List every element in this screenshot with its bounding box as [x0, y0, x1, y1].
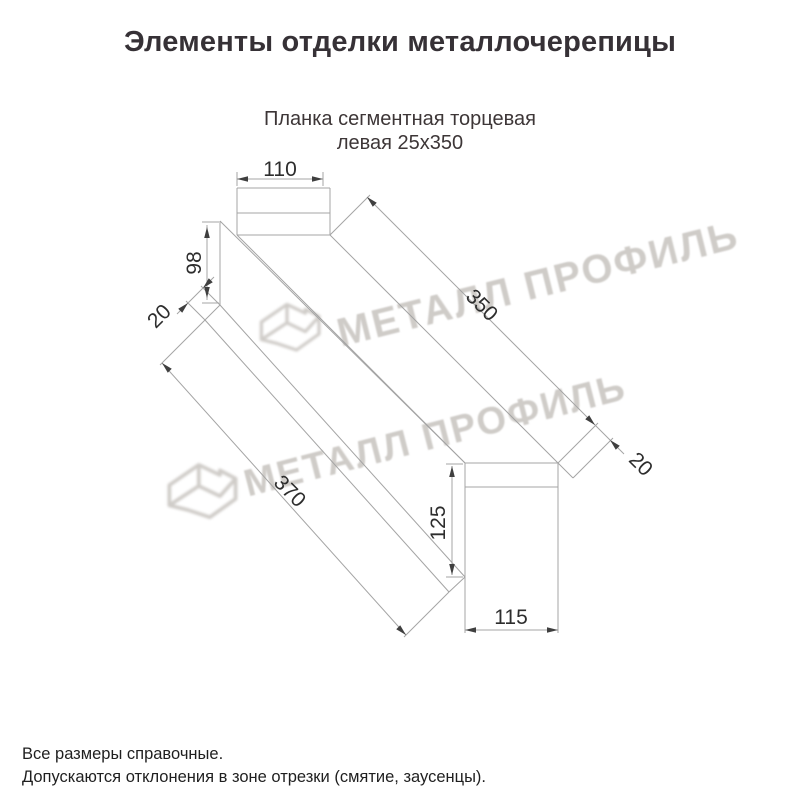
drawing-line — [595, 425, 624, 454]
dimension-arrow — [396, 625, 406, 635]
dimension-arrow — [204, 287, 210, 298]
drawing-line — [558, 423, 598, 463]
drawing-line — [330, 195, 370, 235]
dimension-arrow — [162, 363, 172, 373]
dimension-arrow — [237, 176, 248, 182]
dimension-label: 350 — [461, 285, 502, 326]
dimension-arrow — [449, 466, 455, 477]
dimension-label: 110 — [263, 158, 296, 181]
dimension-label: 125 — [427, 505, 450, 540]
drawing-line — [330, 235, 558, 463]
drawing-line — [404, 592, 449, 637]
drawing-line — [558, 463, 573, 478]
footnote-1: Все размеры справочные. — [22, 743, 486, 766]
drawing-line — [573, 438, 613, 478]
dimension-arrow — [449, 564, 455, 575]
dimension-arrow — [312, 176, 323, 182]
dimension-label: 115 — [494, 606, 527, 629]
drawing-line — [160, 320, 205, 365]
drawing-line — [205, 320, 449, 592]
dimension-label: 20 — [143, 300, 176, 333]
dimension-label: 370 — [269, 471, 310, 512]
drawing-line — [201, 286, 220, 305]
footnotes: Все размеры справочные. Допускаются откл… — [22, 743, 486, 789]
dimension-label: 98 — [183, 251, 206, 274]
drawing-line — [237, 235, 465, 463]
technical-drawing: 110982035020370125115 — [0, 0, 800, 800]
drawing-line — [186, 301, 205, 320]
footnote-2: Допускаются отклонения в зоне отрезки (с… — [22, 766, 486, 789]
drawing-line — [205, 305, 220, 320]
dimension-arrow — [465, 627, 476, 633]
dimension-label: 20 — [624, 448, 657, 481]
dimension-arrow — [547, 627, 558, 633]
drawing-line — [449, 577, 465, 592]
dimension-arrow — [204, 227, 210, 238]
